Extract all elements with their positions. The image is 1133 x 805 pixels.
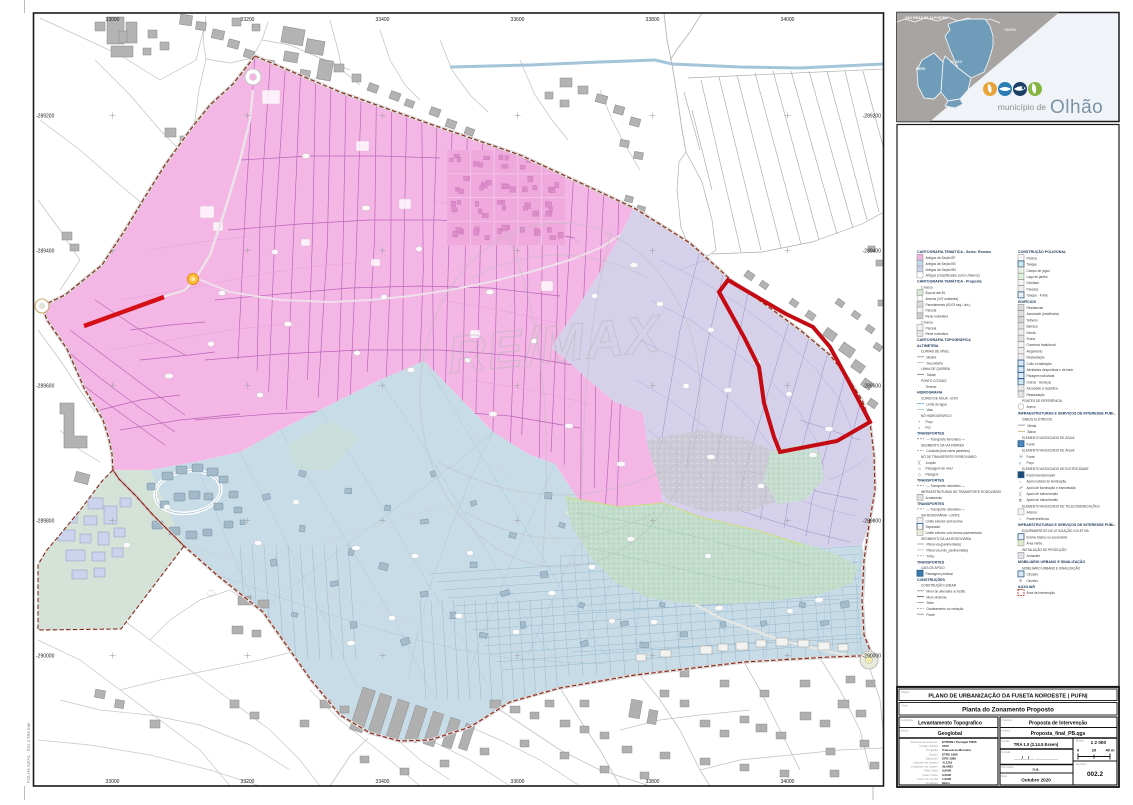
svg-text:Parcela: Parcela	[926, 326, 937, 330]
svg-text:CARTOGRAFIA TEMÁTICA - Propost: CARTOGRAFIA TEMÁTICA - Proposta	[917, 278, 983, 283]
svg-text:Apoio isolado de iluminação: Apoio isolado de iluminação	[1027, 480, 1067, 484]
svg-text:Outubro 2020: Outubro 2020	[1021, 778, 1051, 783]
svg-text:Aprovação: Aprovação	[1002, 766, 1015, 769]
svg-text:Cinzeiro: Cinzeiro	[1027, 573, 1039, 577]
svg-text:ELEMENTO ASSOCIADO DE ÁGUA: ELEMENTO ASSOCIADO DE ÁGUA	[1022, 436, 1075, 440]
svg-text:Culto e instituição: Culto e instituição	[1027, 362, 1052, 366]
svg-text:— Transporte rodoviário —: — Transporte rodoviário —	[927, 508, 966, 512]
svg-text:Proposta: Proposta	[1002, 719, 1013, 722]
svg-text:Residencial: Residencial	[1027, 306, 1044, 310]
svg-text:Plena via (pavimentada): Plena via (pavimentada)	[927, 543, 961, 547]
svg-text:34000: 34000	[781, 17, 795, 23]
svg-text:INFRAESTRUTURAS E SERVIÇOS DE: INFRAESTRUTURAS E SERVIÇOS DE INTERESSE …	[1018, 522, 1116, 527]
svg-text:Limite exterior com berma pavi: Limite exterior com berma pavimentada	[926, 531, 982, 535]
svg-text:Antigos da Seção BN: Antigos da Seção BN	[926, 268, 957, 272]
svg-text:Lago de jardim: Lago de jardim	[1027, 275, 1048, 279]
svg-text:Fonte: Fonte	[1027, 455, 1035, 459]
svg-text:Rede rodoviária: Rede rodoviária	[926, 315, 949, 319]
svg-text:Telheiro: Telheiro	[1027, 318, 1038, 322]
svg-text:NÓ HIDROGRÁFICO: NÓ HIDROGRÁFICO	[921, 413, 952, 418]
svg-text:Apoio de baixa tensão: Apoio de baixa tensão	[1027, 498, 1059, 502]
svg-text:TRANSPORTES: TRANSPORTES	[917, 432, 945, 436]
svg-text:TRANSPORTES: TRANSPORTES	[917, 560, 945, 564]
svg-text:Antigos da Seção BF: Antigos da Seção BF	[926, 256, 956, 260]
svg-text:Separador: Separador	[926, 525, 942, 529]
svg-text:TRANSPORTES: TRANSPORTES	[917, 502, 945, 506]
svg-text:OLHÃO: OLHÃO	[950, 59, 963, 64]
svg-text:Olhão: Olhão	[1050, 97, 1103, 118]
svg-text:ELEMENTO ASSOCIADO DE TELECOMU: ELEMENTO ASSOCIADO DE TELECOMUNICAÇÕES	[1022, 503, 1100, 508]
svg-text:⊞: ⊞	[1019, 578, 1022, 583]
svg-text:Metro: Metro	[942, 781, 950, 785]
svg-text:Trilho: Trilho	[927, 554, 935, 558]
svg-text:Outros - Serviços: Outros - Serviços	[1027, 380, 1052, 384]
svg-text:n.a.: n.a.	[1033, 767, 1040, 772]
svg-text:-289400: -289400	[863, 249, 882, 255]
svg-text:33400: 33400	[376, 779, 390, 785]
svg-text:— Transporte ferroviário —: — Transporte ferroviário —	[927, 437, 966, 441]
svg-text:Armazém: Armazém	[1027, 554, 1041, 558]
svg-text:CONSTRUÇÃO LINEAR: CONSTRUÇÃO LINEAR	[921, 583, 957, 588]
svg-text:Paragem: Paragem	[926, 473, 939, 477]
svg-text:Arruamento: Arruamento	[926, 496, 943, 500]
svg-text:Limite exterior sem berma: Limite exterior sem berma	[926, 519, 963, 523]
svg-text:Parcelamento (63.03 seg./ urb.: Parcelamento (63.03 seg./ urb.)	[926, 303, 971, 307]
svg-text:33200: 33200	[241, 779, 255, 785]
svg-text:VIA RODOVIÁRIA - LIMITE: VIA RODOVIÁRIA - LIMITE	[921, 513, 960, 517]
svg-text:Tanque - Fonte: Tanque - Fonte	[1027, 294, 1049, 298]
svg-text:Vala: Vala	[927, 408, 933, 412]
svg-text:Restauração: Restauração	[1027, 393, 1045, 397]
svg-text:Antigos (Classificados como Ur: Antigos (Classificados como Urbanos)	[926, 274, 980, 278]
svg-text:☍: ☍	[1019, 485, 1023, 490]
svg-text:Antigos da Seção BS: Antigos da Seção BS	[926, 262, 956, 266]
svg-text:Geoglobal: Geoglobal	[938, 731, 963, 737]
svg-text:Levantamento Topografico: Levantamento Topografico	[918, 721, 982, 727]
svg-text:Parcela: Parcela	[926, 309, 937, 313]
svg-text:Linha de água: Linha de água	[927, 402, 947, 406]
svg-text:Poço: Poço	[1027, 461, 1034, 465]
svg-text:Cartografia: Cartografia	[901, 719, 914, 722]
svg-text:Paredes: Paredes	[1027, 287, 1039, 291]
svg-text:Associado (residência): Associado (residência)	[1027, 312, 1059, 316]
svg-text:-289600: -289600	[36, 384, 55, 390]
svg-text:Poço: Poço	[926, 420, 933, 424]
svg-text:33800: 33800	[646, 17, 660, 23]
svg-text:Autoria: Autoria	[901, 730, 910, 733]
svg-text:SÃO BRÁS DE ALPORTEL: SÃO BRÁS DE ALPORTEL	[905, 15, 948, 20]
svg-text:MOBILIÁRIO URBANO E SINALIZAÇÃ: MOBILIÁRIO URBANO E SINALIZAÇÃO	[1022, 565, 1081, 570]
svg-text:33600: 33600	[511, 779, 525, 785]
svg-text:CURVAS DE NÍVEL: CURVAS DE NÍVEL	[921, 350, 950, 354]
svg-text:╳: ╳	[917, 460, 921, 465]
svg-text:Tanque: Tanque	[1027, 263, 1038, 267]
svg-text:SEGMENTO DA VIA FÉRREA: SEGMENTO DA VIA FÉRREA	[921, 442, 965, 447]
svg-text:LINHA DE QUEBRA: LINHA DE QUEBRA	[921, 367, 951, 371]
svg-text:MOBILIÁRIO URBANO E SINALIZAÇÃ: MOBILIÁRIO URBANO E SINALIZAÇÃO	[1018, 559, 1085, 564]
svg-text:-289200: -289200	[863, 114, 882, 120]
svg-text:33200: 33200	[241, 17, 255, 23]
svg-text:-290000: -290000	[863, 654, 882, 660]
svg-text:╳: ╳	[1018, 491, 1022, 496]
svg-text:Secundária: Secundária	[927, 361, 943, 365]
svg-text:PONTES DE REFERÊNCIA: PONTES DE REFERÊNCIA	[1022, 398, 1063, 403]
svg-text:Terreno: Terreno	[926, 385, 937, 389]
svg-text:ELEMENTO ASSOCIADO DE ÁGUA: ELEMENTO ASSOCIADO DE ÁGUA	[1022, 449, 1075, 453]
svg-text:-289200: -289200	[36, 114, 55, 120]
svg-text:-290000: -290000	[36, 654, 55, 660]
svg-text:— Transporte rodoviário —: — Transporte rodoviário —	[927, 484, 966, 488]
svg-text:Planta do Zonamento Proposto: Planta do Zonamento Proposto	[962, 707, 1054, 714]
svg-text:Baixa: Baixa	[1028, 430, 1036, 434]
svg-text:1 marca: 1 marca	[921, 285, 933, 289]
svg-text:Comércio tradicional: Comércio tradicional	[1027, 343, 1056, 347]
svg-text:Atividades desportivas e de la: Atividades desportivas e de lazer	[1027, 368, 1075, 372]
svg-text:ALTIMETRIA: ALTIMETRIA	[917, 344, 939, 348]
svg-text:Apoio de baixa tensão: Apoio de baixa tensão	[1027, 492, 1059, 496]
svg-text:SEGMENTO DA VIA RODOVIÁRIA: SEGMENTO DA VIA RODOVIÁRIA	[921, 537, 972, 541]
svg-text:ELEMENTO ASSOCIADO DE ELETRICI: ELEMENTO ASSOCIADO DE ELETRICIDADE	[1022, 467, 1089, 471]
svg-text:20: 20	[1092, 748, 1097, 753]
svg-text:33000: 33000	[106, 17, 120, 23]
svg-text:Ruína: Ruína	[1027, 337, 1036, 341]
svg-text:Proposta de Intervenção: Proposta de Intervenção	[1029, 721, 1087, 727]
svg-text:Junção: Junção	[926, 461, 937, 465]
svg-text:TRA 1.0 (2.14.5 Essen): TRA 1.0 (2.14.5 Essen)	[1014, 742, 1059, 747]
svg-text:Muro de alvenaria ou betão: Muro de alvenaria ou betão	[927, 590, 966, 594]
svg-text:Rede rodoviária: Rede rodoviária	[926, 332, 949, 336]
svg-text:Antena: Antena	[1027, 511, 1037, 515]
svg-text:CONSTRUÇÕES: CONSTRUÇÕES	[917, 577, 946, 582]
svg-text:CURSO DE ÁGUA - EIXO: CURSO DE ÁGUA - EIXO	[921, 396, 959, 400]
svg-text:PLANO DE URBANIZAÇÃO DA FUSETA: PLANO DE URBANIZAÇÃO DA FUSETA NOROESTE …	[928, 693, 1088, 700]
svg-text:Conduta (dois carris paralelos: Conduta (dois carris paralelos)	[927, 449, 970, 453]
svg-text:Campo de jogos: Campo de jogos	[1027, 269, 1051, 273]
svg-text:Ponte: Ponte	[927, 613, 936, 617]
svg-text:AUXILIAR: AUXILIAR	[1018, 585, 1035, 589]
svg-text:Proposta_final_PB.qgs: Proposta_final_PB.qgs	[1031, 731, 1086, 737]
svg-text:Gradeamento ou vedação: Gradeamento ou vedação	[927, 607, 964, 611]
svg-text:PONTO COTADO: PONTO COTADO	[921, 379, 947, 383]
svg-text:Estufado: Estufado	[1027, 281, 1040, 285]
svg-text:33600: 33600	[511, 17, 525, 23]
svg-text:TAVIRA: TAVIRA	[1004, 28, 1017, 32]
svg-text:Restauração: Restauração	[1027, 356, 1045, 360]
svg-text:-289600: -289600	[863, 384, 882, 390]
svg-text:Muro divisória: Muro divisória	[927, 595, 947, 599]
svg-text:Poste telefónico: Poste telefónico	[1027, 517, 1050, 521]
svg-text:CARTOGRAFIA TEMÁTICA - Solos·: CARTOGRAFIA TEMÁTICA - Solos· Éxodos	[917, 249, 991, 254]
svg-text:Área verde: Área verde	[1027, 542, 1043, 546]
svg-text:Média: Média	[1028, 424, 1037, 428]
svg-text:-289800: -289800	[863, 519, 882, 525]
svg-text:Plena via (não_pavimentada): Plena via (não_pavimentada)	[927, 549, 968, 553]
svg-text:Unidades: Unidades	[925, 781, 938, 785]
svg-text:Piscina: Piscina	[1027, 256, 1038, 260]
svg-text:Anexo: Anexo	[1027, 405, 1036, 409]
svg-text:·: ·	[918, 384, 919, 389]
svg-text:Mestra: Mestra	[927, 356, 937, 360]
svg-text:CAIS DE APOIO: CAIS DE APOIO	[921, 566, 945, 570]
svg-text:40 m: 40 m	[1105, 748, 1115, 753]
svg-text:___/__/__ _________: ___/__/__ _________	[1013, 756, 1058, 761]
svg-text:1 2 000: 1 2 000	[1091, 740, 1107, 745]
svg-text:002.2: 002.2	[1087, 771, 1103, 778]
svg-text:33400: 33400	[376, 17, 390, 23]
svg-text:34000: 34000	[781, 779, 795, 785]
svg-text:Ensino básico ou secundário: Ensino básico ou secundário	[1027, 535, 1068, 539]
svg-text:INFRAESTRUTURAS E SERVIÇOS DE: INFRAESTRUTURAS E SERVIÇOS DE INTERESSE …	[1018, 410, 1116, 415]
svg-text:-289800: -289800	[36, 519, 55, 525]
svg-text:município de: município de	[998, 102, 1046, 112]
svg-text:⦿: ⦿	[1019, 453, 1023, 459]
svg-text:INFRAESTRUTURAS DE TRANSPORTE: INFRAESTRUTURAS DE TRANSPORTE RODOVIÁRIO	[921, 490, 1002, 494]
svg-text:FARO: FARO	[916, 67, 926, 71]
svg-text:33000: 33000	[106, 779, 120, 785]
svg-text:33800: 33800	[646, 779, 660, 785]
svg-text:Cinzeiro: Cinzeiro	[1027, 579, 1039, 583]
svg-text:TRANSPORTES: TRANSPORTES	[917, 478, 945, 482]
svg-text:Revisão: Revisão	[1002, 751, 1012, 754]
svg-text:Apoio de iluminação e transmis: Apoio de iluminação e transmissão	[1027, 486, 1077, 490]
svg-text:-289400: -289400	[36, 249, 55, 255]
svg-text:Passagem de nível: Passagem de nível	[926, 467, 953, 471]
svg-text:CARTOGRAFIA TOPOGRÁFICA: CARTOGRAFIA TOPOGRÁFICA	[917, 337, 971, 342]
svg-text:EDIFÍCIOS: EDIFÍCIOS	[1018, 299, 1037, 304]
svg-text:NÓ DE TRANSPORTE FERROVIÁRIO: NÓ DE TRANSPORTE FERROVIÁRIO	[921, 454, 977, 459]
svg-text:INSTALAÇÃO DE PRODUÇÃO: INSTALAÇÃO DE PRODUÇÃO	[1022, 547, 1067, 552]
svg-text:Associado à república: Associado à república	[1027, 387, 1058, 391]
svg-text:Barraca: Barraca	[1027, 325, 1038, 329]
svg-text:2 marca: 2 marca	[921, 320, 933, 324]
svg-text:FOLHA A3/A1 - 841 x 594 mm: FOLHA A3/A1 - 841 x 594 mm	[26, 722, 31, 783]
svg-text:HIDROGRAFIA: HIDROGRAFIA	[917, 391, 943, 395]
svg-text:Título: Título	[901, 704, 908, 708]
svg-text:Fonte: Fonte	[1027, 442, 1035, 446]
svg-text:Ficheiro: Ficheiro	[1002, 730, 1012, 733]
svg-text:CABOS ELÉTRICOS: CABOS ELÉTRICOS	[1022, 417, 1052, 422]
svg-text:Paragem rodoviária: Paragem rodoviária	[1027, 374, 1055, 378]
svg-text:Data: Data	[1002, 775, 1008, 778]
svg-text:Passagem pedonal: Passagem pedonal	[926, 572, 954, 576]
svg-text:Versão: Versão	[1002, 740, 1010, 743]
svg-text:Estufa: Estufa	[1027, 331, 1036, 335]
svg-text:Alojamento: Alojamento	[1027, 349, 1043, 353]
svg-text:Sebe: Sebe	[927, 601, 935, 605]
svg-text:EQUIPAMENTOS DE UTILIZAÇÃO COL: EQUIPAMENTOS DE UTILIZAÇÃO COLETIVA	[1022, 528, 1090, 533]
svg-text:◊: ◊	[1019, 460, 1021, 465]
svg-text:Projeto: Projeto	[901, 690, 910, 694]
svg-text:Escala: Escala	[1076, 740, 1084, 743]
svg-text:Anexos (107 unidades): Anexos (107 unidades)	[926, 297, 959, 301]
svg-text:Foz: Foz	[926, 426, 932, 430]
svg-text:Área de intervenção: Área de intervenção	[1027, 591, 1056, 595]
svg-text:Época/ até BL: Época/ até BL	[926, 290, 946, 295]
svg-text:Desenho: Desenho	[1076, 763, 1087, 766]
svg-text:Posto transformador: Posto transformador	[1027, 473, 1057, 477]
svg-text:Talude: Talude	[927, 373, 937, 377]
svg-text:CONSTRUÇÃO POLIGONAL: CONSTRUÇÃO POLIGONAL	[1018, 249, 1067, 254]
